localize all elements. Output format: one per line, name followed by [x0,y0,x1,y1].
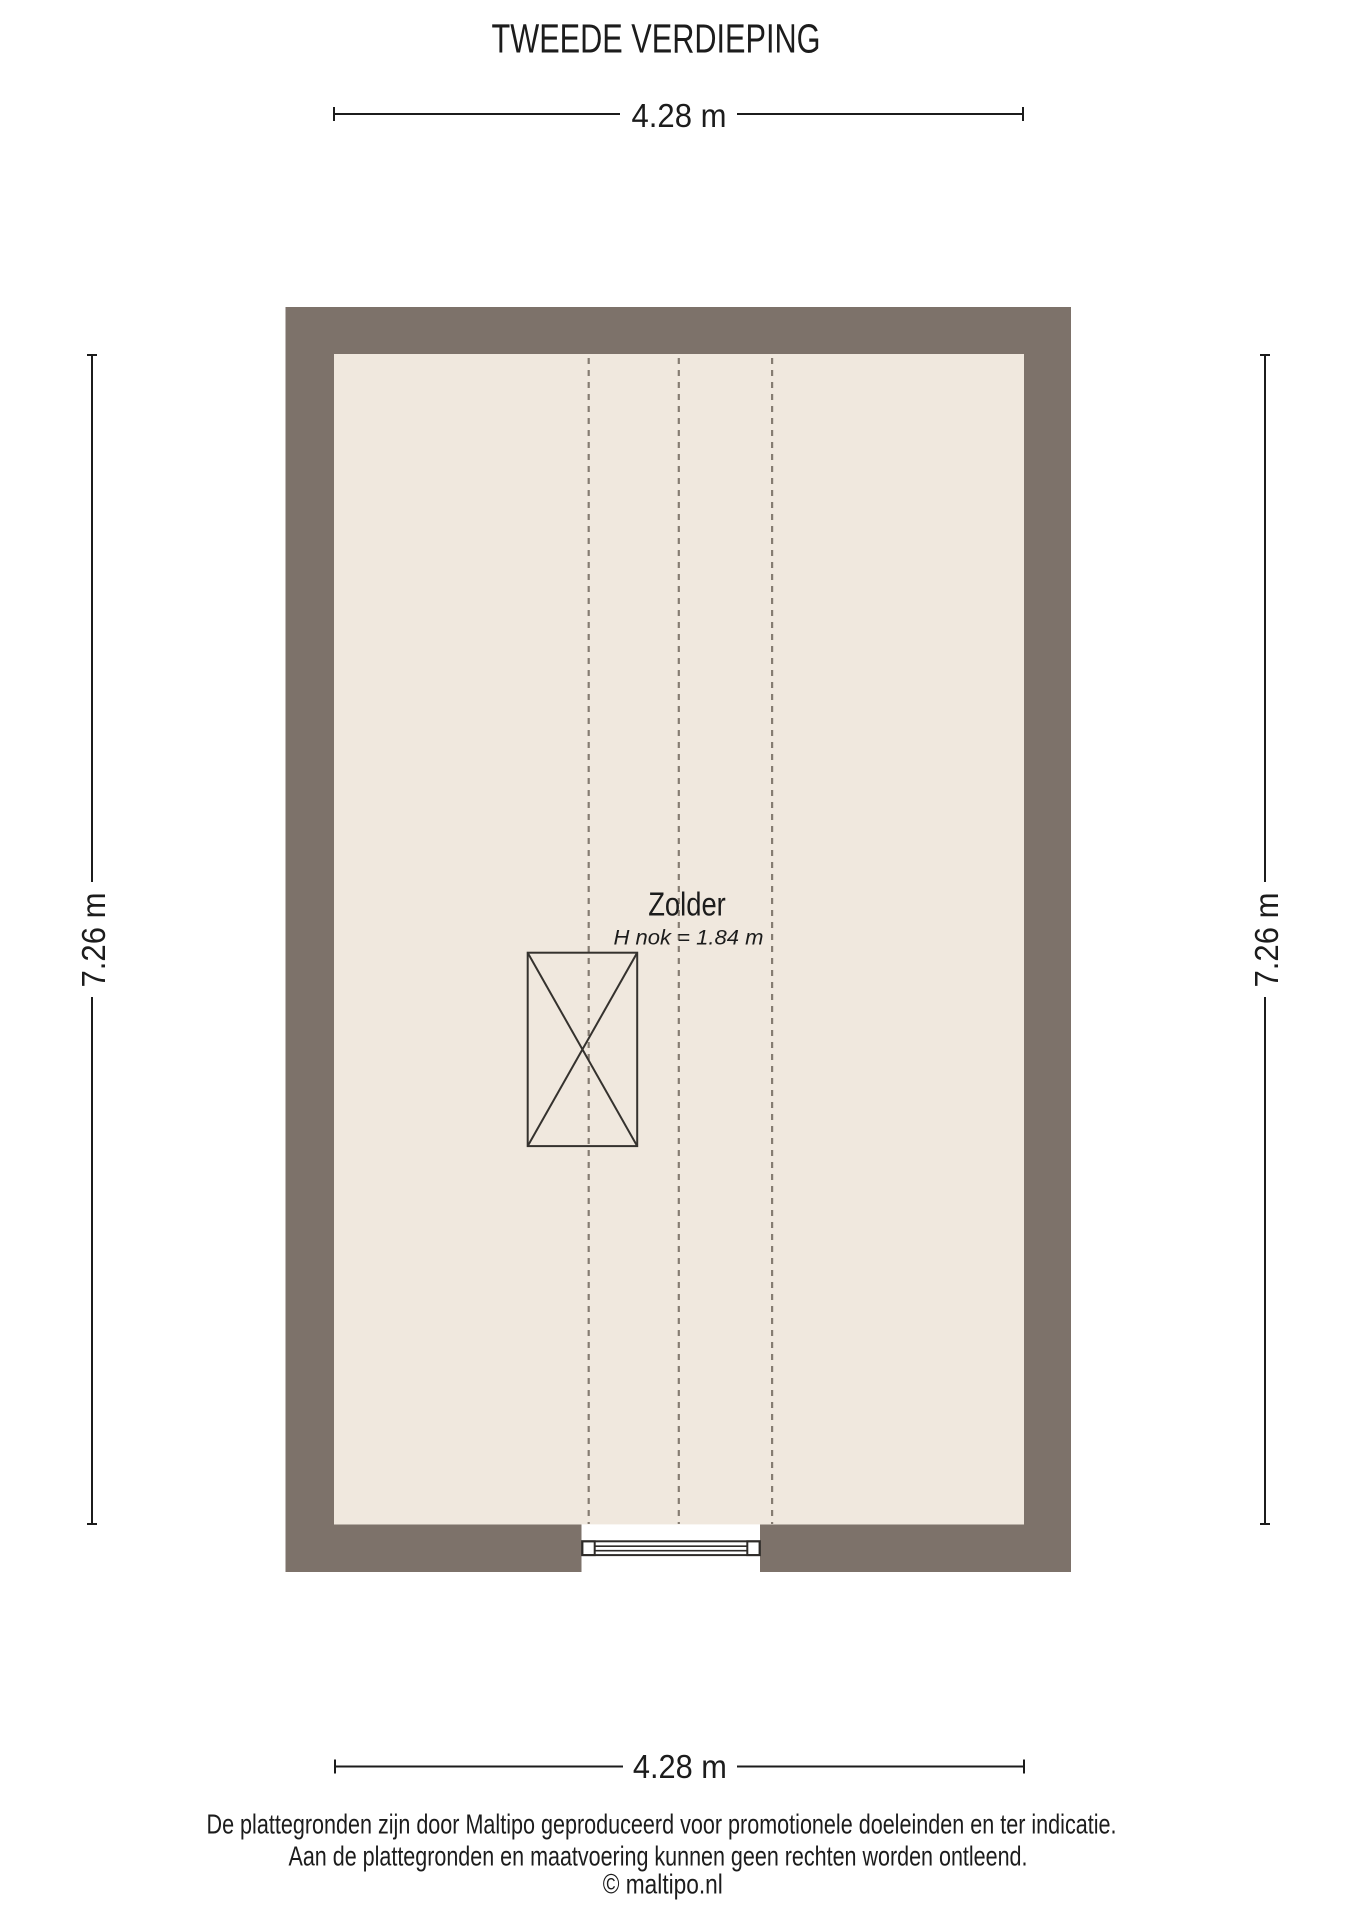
svg-text:© maltipo.nl: © maltipo.nl [603,1869,723,1900]
svg-text:4.28 m: 4.28 m [633,1748,727,1785]
svg-text:De plattegronden zijn door Mal: De plattegronden zijn door Maltipo gepro… [207,1809,1117,1840]
svg-text:4.28 m: 4.28 m [632,97,727,134]
svg-text:Aan de plattegronden en maatvo: Aan de plattegronden en maatvoering kunn… [289,1841,1028,1872]
svg-text:TWEEDE VERDIEPING: TWEEDE VERDIEPING [492,16,821,62]
svg-text:Zolder: Zolder [648,887,726,924]
svg-text:7.26 m: 7.26 m [75,893,112,988]
svg-text:7.26 m: 7.26 m [1248,893,1285,988]
svg-text:H nok = 1.84 m: H nok = 1.84 m [614,925,764,949]
